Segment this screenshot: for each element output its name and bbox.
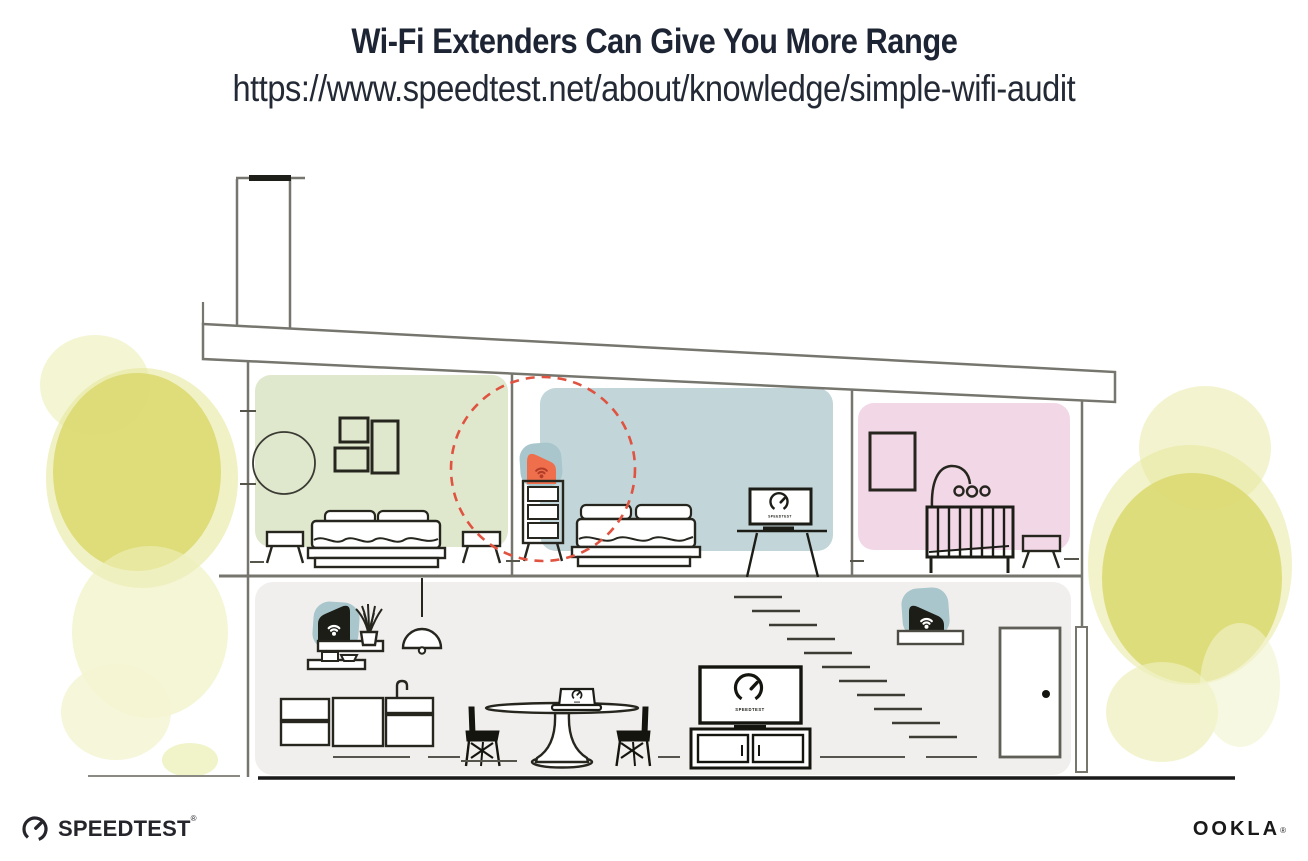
nightstand-left bbox=[267, 532, 303, 563]
nursery-pink-background bbox=[858, 403, 1070, 550]
front-door bbox=[1000, 628, 1060, 757]
ookla-wordmark: OOKLA bbox=[1193, 818, 1280, 841]
right-wall-trim bbox=[1076, 627, 1087, 772]
ookla-reg-mark: ® bbox=[1280, 826, 1286, 835]
tv-screen-label: SPEEDTEST bbox=[735, 707, 764, 712]
house-illustration: SPEEDTEST bbox=[0, 0, 1308, 861]
tv-living-room: SPEEDTEST bbox=[691, 667, 810, 768]
door-knob bbox=[1042, 690, 1050, 698]
speedtest-reg-mark: ® bbox=[191, 814, 197, 823]
speedtest-gauge-icon bbox=[20, 814, 50, 844]
bed-blue bbox=[572, 505, 700, 566]
tv-screen-label: SPEEDTEST bbox=[768, 515, 792, 519]
stair-shelf bbox=[898, 631, 963, 644]
speedtest-logo: SPEEDTEST® bbox=[20, 814, 197, 844]
infographic-page: Wi-Fi Extenders Can Give You More Range … bbox=[0, 0, 1308, 861]
chimney bbox=[236, 175, 305, 332]
speedtest-wordmark: SPEEDTEST bbox=[58, 816, 191, 841]
tree-right bbox=[1088, 386, 1292, 762]
tree-left bbox=[40, 335, 238, 777]
ookla-logo: OOKLA® bbox=[1193, 818, 1286, 841]
